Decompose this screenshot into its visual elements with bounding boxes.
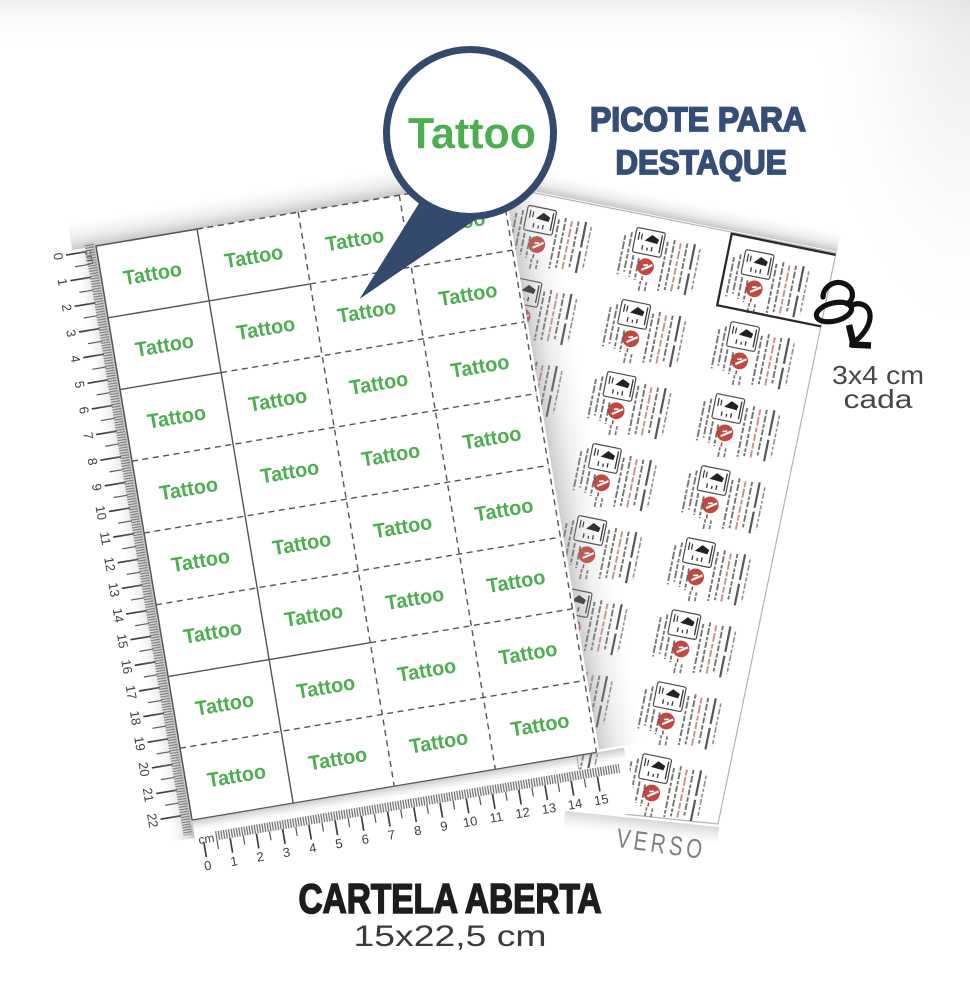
svg-text:17: 17 [123,684,140,701]
svg-text:21: 21 [140,787,157,804]
svg-text:cada: cada [844,384,914,414]
svg-text:19: 19 [131,735,148,752]
svg-text:DESTAQUE: DESTAQUE [616,144,787,182]
svg-text:13: 13 [105,581,122,598]
svg-text:13: 13 [540,800,557,817]
svg-text:Tattoo: Tattoo [408,109,536,158]
svg-text:11: 11 [97,531,114,547]
svg-text:14: 14 [110,607,127,624]
svg-text:12: 12 [101,556,118,573]
svg-text:15x22,5 cm: 15x22,5 cm [354,920,547,953]
svg-text:11: 11 [488,809,504,826]
svg-text:cm: cm [197,831,215,847]
svg-text:CARTELA ABERTA: CARTELA ABERTA [299,875,602,922]
svg-text:15: 15 [114,633,131,650]
svg-text:15: 15 [593,791,610,808]
svg-text:10: 10 [93,504,110,521]
svg-text:14: 14 [567,795,584,812]
svg-text:20: 20 [135,761,152,778]
svg-text:22: 22 [144,812,161,829]
svg-text:PICOTE PARA: PICOTE PARA [590,101,806,139]
svg-text:16: 16 [118,658,135,675]
svg-text:10: 10 [462,813,479,830]
svg-text:12: 12 [514,804,531,821]
svg-text:18: 18 [127,710,144,727]
